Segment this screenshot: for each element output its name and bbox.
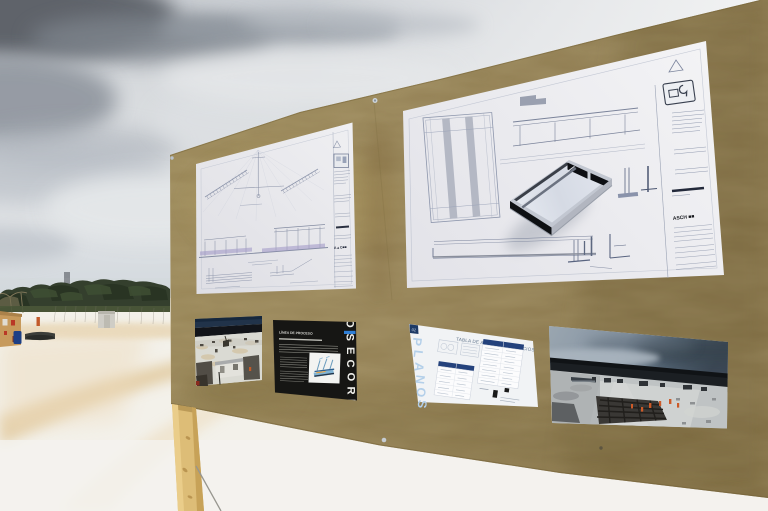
svg-text:O: O bbox=[344, 373, 356, 382]
svg-text:A: A bbox=[411, 362, 426, 373]
svg-text:E: E bbox=[344, 347, 356, 355]
svg-text:R: R bbox=[345, 387, 357, 395]
svg-text:O: O bbox=[413, 387, 428, 399]
svg-text:C: C bbox=[344, 360, 356, 368]
svg-text:S: S bbox=[415, 399, 430, 409]
svg-text:N: N bbox=[412, 374, 427, 385]
svg-text:S: S bbox=[344, 334, 356, 342]
svg-text:P: P bbox=[410, 337, 425, 347]
